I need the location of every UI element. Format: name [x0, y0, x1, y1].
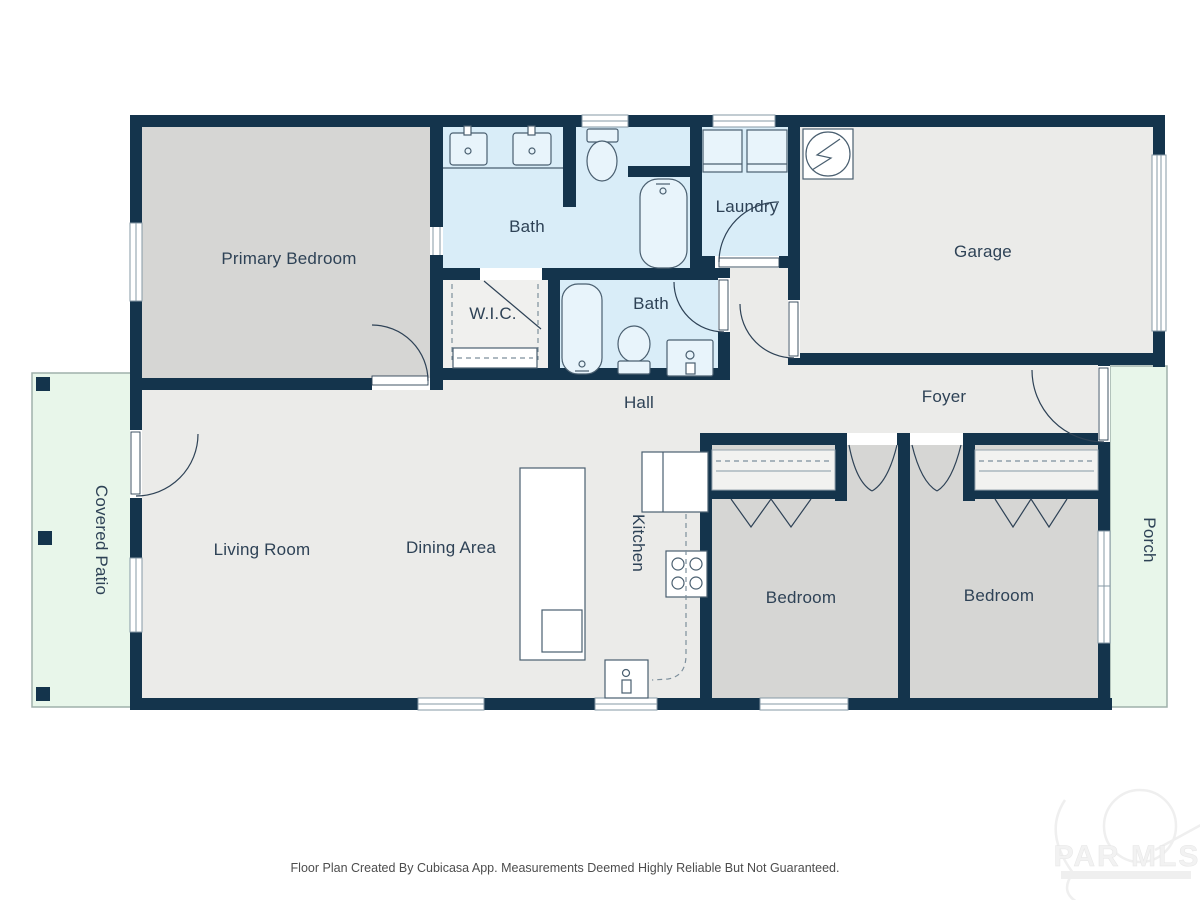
room-label-porch: Porch: [1140, 517, 1159, 562]
toilet-icon: [587, 129, 618, 181]
room-label-laundry: Laundry: [716, 197, 779, 216]
window: [130, 558, 142, 632]
room-label-living-room: Living Room: [214, 540, 311, 559]
window: [130, 223, 142, 301]
washer-icon: [703, 130, 742, 172]
window: [713, 115, 775, 127]
room-label-primary-bedroom: Primary Bedroom: [221, 249, 356, 268]
room-label-foyer: Foyer: [922, 387, 967, 406]
kitchen-cabinet: [642, 452, 708, 512]
dryer-icon: [747, 130, 787, 172]
room-label-kitchen: Kitchen: [629, 514, 648, 572]
toilet-icon: [618, 326, 650, 374]
floor-plan-drawing: Primary Bedroom Bath Laundry Garage W.I.…: [0, 0, 1200, 900]
kitchen-island-counter: [520, 468, 585, 660]
bathtub-icon: [640, 179, 687, 268]
kitchen-sink-icon: [605, 660, 648, 698]
room-label-bath-hall: Bath: [633, 294, 669, 313]
logo-fine-print: [1061, 871, 1191, 879]
room-label-hall: Hall: [624, 393, 654, 412]
room-label-covered-patio: Covered Patio: [92, 485, 111, 595]
window: [595, 698, 657, 710]
garage-door: [1152, 155, 1166, 331]
room-label-bedroom-left: Bedroom: [766, 588, 836, 607]
mls-watermark-logo: PAR MLS: [1045, 790, 1200, 900]
water-heater-icon: [803, 129, 853, 179]
vanity-sink-icon: [667, 340, 713, 376]
window: [418, 698, 484, 710]
room-label-garage: Garage: [954, 242, 1012, 261]
room-label-dining-area: Dining Area: [406, 538, 496, 557]
corridor-floor: [730, 268, 788, 365]
floor-plan-page: Primary Bedroom Bath Laundry Garage W.I.…: [0, 0, 1200, 900]
room-label-bedroom-right: Bedroom: [964, 586, 1034, 605]
logo-text: PAR MLS: [1054, 840, 1200, 873]
room-label-wic: W.I.C.: [469, 304, 516, 323]
window: [582, 115, 628, 127]
bathtub-icon: [562, 284, 602, 374]
window: [1098, 531, 1110, 643]
window: [760, 698, 848, 710]
footer-disclaimer: Floor Plan Created By Cubicasa App. Meas…: [291, 861, 840, 875]
room-label-bath-main: Bath: [509, 217, 545, 236]
